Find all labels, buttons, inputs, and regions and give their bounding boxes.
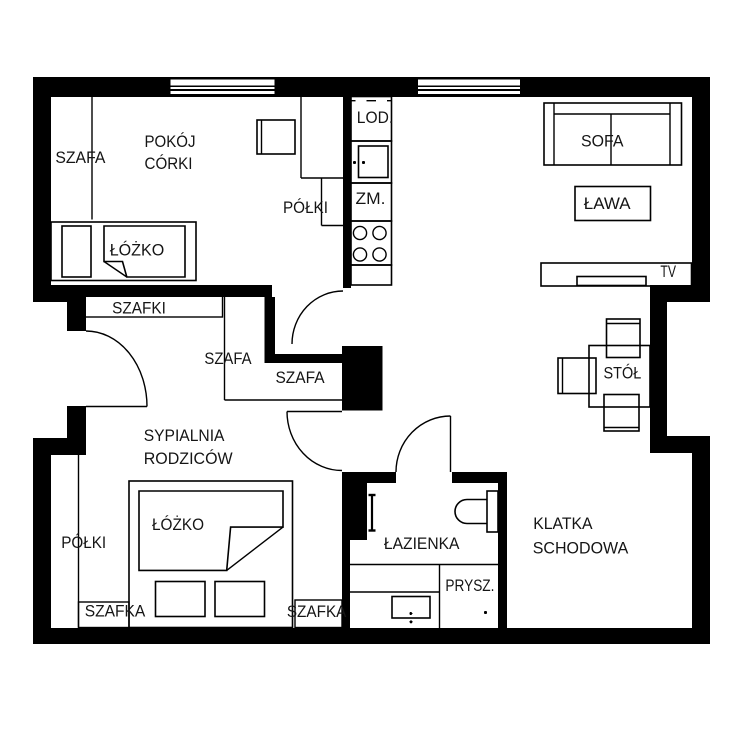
svg-text:KLATKA: KLATKA bbox=[533, 514, 593, 533]
svg-text:LOD.: LOD. bbox=[357, 108, 393, 127]
svg-text:SZAFA: SZAFA bbox=[275, 368, 325, 387]
svg-text:SZAFA: SZAFA bbox=[55, 148, 106, 167]
svg-text:POKÓJ: POKÓJ bbox=[145, 132, 196, 151]
svg-text:ZM.: ZM. bbox=[356, 189, 386, 208]
svg-text:SZAFKI: SZAFKI bbox=[112, 299, 166, 318]
svg-text:SZAFKA: SZAFKA bbox=[85, 602, 146, 621]
svg-text:ŁÓŻKO: ŁÓŻKO bbox=[110, 241, 165, 260]
svg-text:CÓRKI: CÓRKI bbox=[145, 154, 193, 173]
svg-text:ŁAZIENKA: ŁAZIENKA bbox=[384, 534, 460, 553]
svg-text:SCHODOWA: SCHODOWA bbox=[533, 539, 629, 558]
svg-text:SOFA: SOFA bbox=[581, 132, 624, 151]
svg-text:PÓŁKI: PÓŁKI bbox=[61, 533, 106, 552]
svg-text:ŁÓŻKO: ŁÓŻKO bbox=[152, 515, 204, 534]
svg-text:RODZICÓW: RODZICÓW bbox=[144, 449, 233, 468]
svg-text:SZAFKA: SZAFKA bbox=[287, 602, 347, 621]
svg-text:PÓŁKI: PÓŁKI bbox=[283, 198, 328, 217]
svg-text:ŁAWA: ŁAWA bbox=[584, 194, 631, 213]
svg-text:PRYSZ.: PRYSZ. bbox=[445, 576, 494, 595]
svg-text:TV: TV bbox=[660, 262, 676, 281]
svg-text:STÓŁ: STÓŁ bbox=[604, 364, 642, 383]
svg-text:SYPIALNIA: SYPIALNIA bbox=[144, 426, 225, 445]
svg-text:SZAFA: SZAFA bbox=[204, 349, 252, 368]
